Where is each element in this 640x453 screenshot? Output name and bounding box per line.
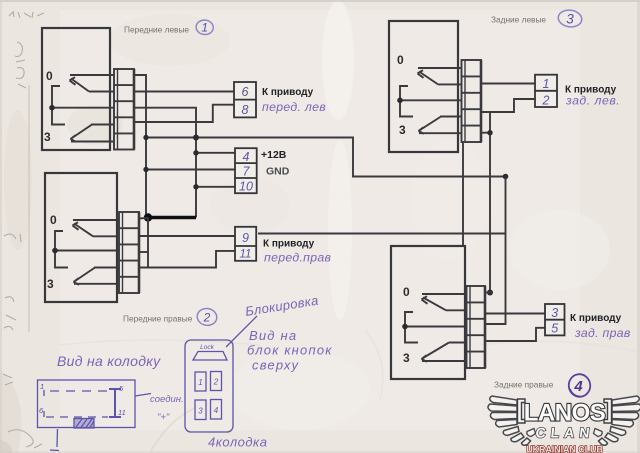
svg-text:0: 0 — [46, 69, 53, 83]
svg-text:3: 3 — [399, 123, 406, 137]
svg-text:3: 3 — [551, 306, 558, 320]
svg-text:1: 1 — [40, 382, 44, 391]
svg-text:сверху: сверху — [252, 358, 300, 373]
svg-text:Передние левые: Передние левые — [124, 25, 189, 35]
svg-text:4: 4 — [243, 150, 250, 164]
svg-text:3: 3 — [403, 351, 410, 365]
svg-text:2: 2 — [203, 311, 211, 325]
svg-text:7: 7 — [243, 165, 251, 179]
svg-text:+12В: +12В — [261, 149, 287, 161]
svg-text:зад. прав: зад. прав — [574, 326, 631, 340]
svg-text:4: 4 — [573, 378, 583, 395]
svg-text:0: 0 — [403, 285, 410, 299]
svg-text:3: 3 — [47, 277, 54, 291]
svg-text:5: 5 — [551, 322, 558, 336]
svg-text:Задние правые: Задние правые — [494, 380, 554, 390]
svg-text:перед. лев: перед. лев — [262, 100, 326, 114]
svg-text:1: 1 — [543, 77, 550, 91]
svg-text:Lock: Lock — [200, 344, 214, 351]
svg-text:0: 0 — [50, 213, 57, 227]
svg-text:2: 2 — [213, 378, 219, 387]
svg-text:"+": "+" — [157, 412, 170, 423]
svg-text:перед.прав: перед.прав — [264, 251, 332, 265]
svg-text:Задние левые: Задние левые — [491, 15, 546, 25]
svg-text:8: 8 — [242, 103, 249, 117]
svg-text:соедин.: соедин. — [150, 394, 184, 405]
svg-text:Вид на колодку: Вид на колодку — [57, 353, 161, 369]
svg-text:11: 11 — [118, 408, 126, 417]
svg-text:К приводу: К приводу — [570, 313, 622, 324]
svg-text:10: 10 — [239, 180, 253, 194]
svg-text:Передние правые: Передние правые — [123, 314, 193, 324]
svg-text:CLAN: CLAN — [535, 425, 595, 441]
svg-text:GND: GND — [266, 166, 290, 178]
svg-text:UKRAINIAN CLUB: UKRAINIAN CLUB — [526, 445, 603, 453]
svg-text:3: 3 — [198, 407, 203, 416]
svg-text:4колодка: 4колодка — [208, 435, 267, 450]
svg-text:9: 9 — [242, 231, 249, 245]
svg-text:6: 6 — [242, 85, 249, 99]
svg-text:0: 0 — [397, 53, 404, 67]
svg-text:Вид на: Вид на — [249, 328, 297, 343]
svg-text:К приводу: К приводу — [263, 239, 315, 250]
svg-text:4: 4 — [214, 406, 219, 415]
svg-text:блок кнопок: блок кнопок — [247, 343, 333, 358]
svg-text:зад. лев.: зад. лев. — [565, 94, 620, 108]
svg-text:К приводу: К приводу — [262, 87, 314, 98]
svg-text:3: 3 — [566, 12, 574, 27]
svg-text:LANOS: LANOS — [524, 400, 606, 427]
svg-text:11: 11 — [240, 249, 252, 261]
svg-text:3: 3 — [44, 130, 51, 144]
svg-text:1: 1 — [198, 378, 202, 387]
svg-text:2: 2 — [542, 94, 550, 108]
svg-text:1: 1 — [201, 21, 208, 35]
